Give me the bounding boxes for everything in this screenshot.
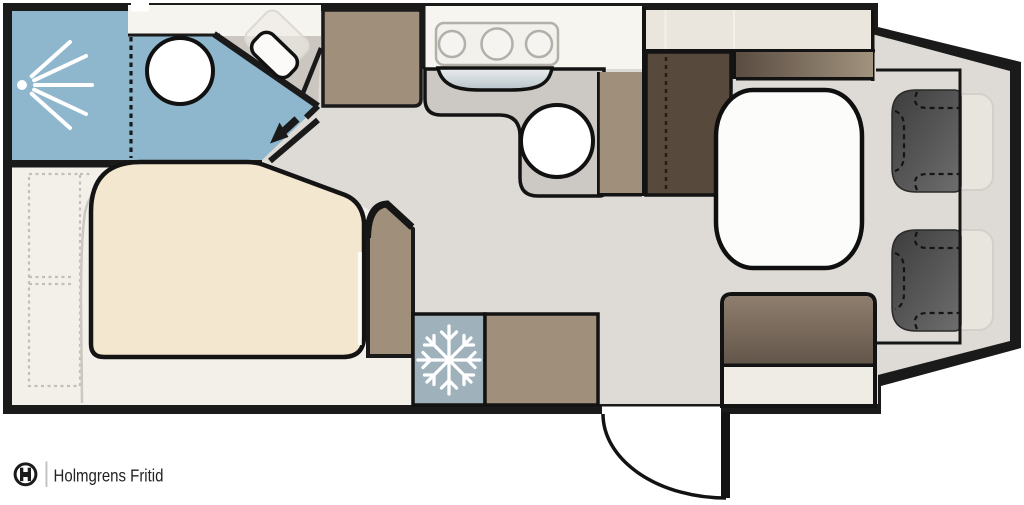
svg-text:Holmgrens Fritid: Holmgrens Fritid — [54, 467, 164, 486]
